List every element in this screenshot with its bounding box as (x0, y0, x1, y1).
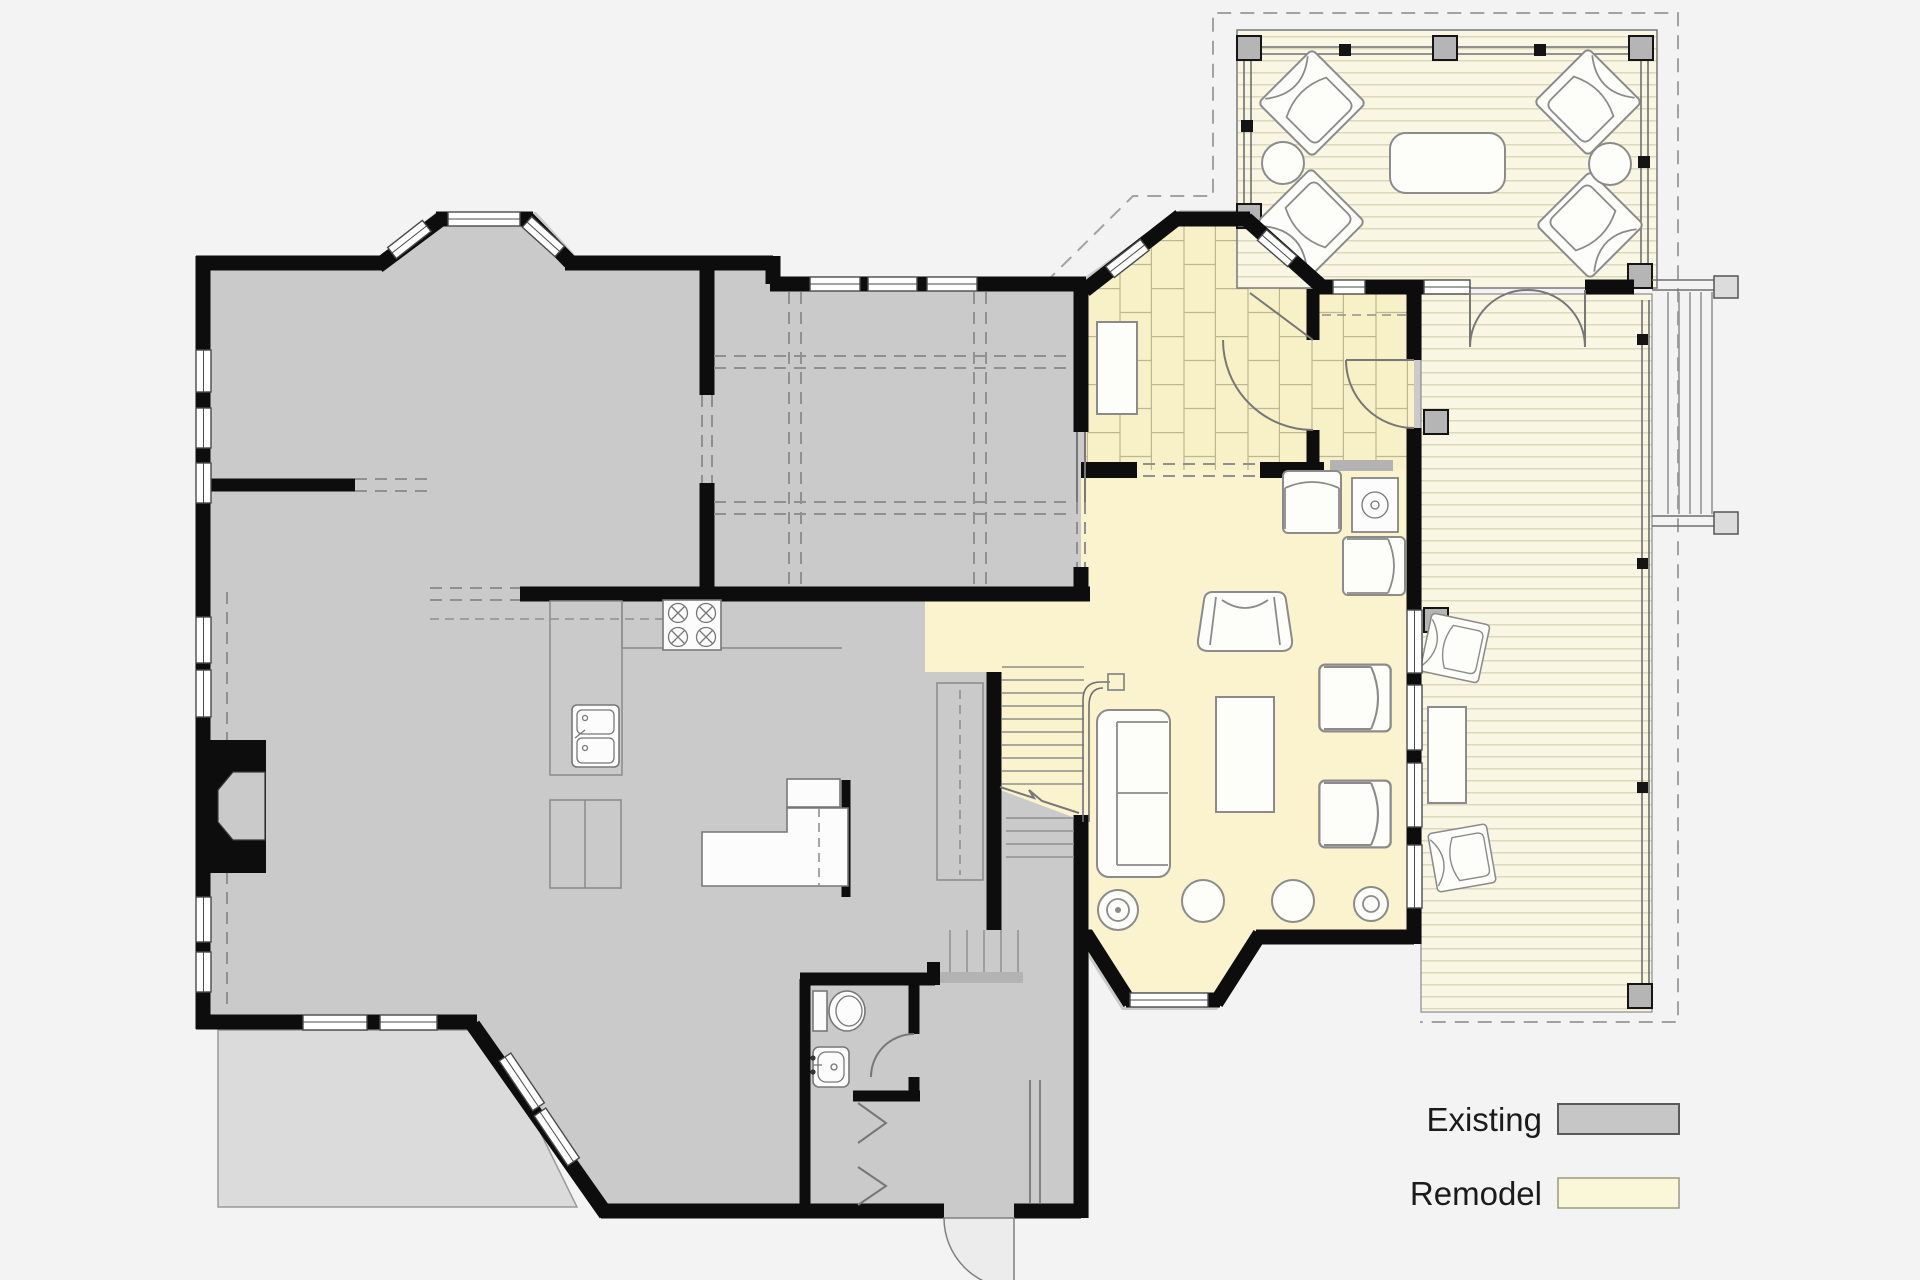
mudroom-bench (1097, 322, 1137, 414)
armchair (1283, 471, 1341, 533)
wall-stub (927, 962, 940, 985)
armchair (1343, 537, 1405, 595)
coffee-table (1216, 697, 1274, 812)
sofa (1097, 710, 1170, 877)
deck-stair-post (1714, 276, 1738, 298)
armchair (1319, 665, 1390, 732)
porch-post (1433, 36, 1457, 60)
deck (1420, 294, 1652, 1012)
bathroom-sink-icon (810, 1047, 849, 1087)
kitchen-sink-icon (572, 705, 619, 767)
legend-existing-swatch (1558, 1104, 1679, 1134)
legend-existing-label: Existing (1426, 1101, 1542, 1138)
round-side-table (1354, 887, 1388, 921)
porch-side-table (1589, 143, 1631, 185)
deck-post (1628, 984, 1652, 1008)
deck-chair (1420, 613, 1490, 683)
railing-baluster (1637, 782, 1648, 793)
hall-floor (1320, 289, 1414, 470)
railing-baluster (1637, 558, 1648, 569)
deck-post (1424, 410, 1448, 434)
railing-baluster (1339, 44, 1351, 56)
floor-plan-canvas: Existing Remodel (0, 0, 1920, 1280)
deck-chair (1428, 824, 1497, 893)
ottoman (1182, 880, 1224, 922)
fireplace-icon (196, 740, 266, 873)
armchair (1319, 781, 1390, 848)
railing-baluster (1638, 156, 1650, 168)
porch-post (1237, 36, 1261, 60)
railing-baluster (1534, 44, 1546, 56)
porch-post (1629, 36, 1653, 60)
lounge-chair (1198, 592, 1292, 651)
toilet-icon (813, 991, 865, 1031)
ottoman (1272, 880, 1314, 922)
porch-coffee-table (1390, 133, 1505, 193)
deck-stair-post (1714, 512, 1738, 534)
floor-plan-drawing: Existing Remodel (0, 0, 1920, 1280)
porch-side-table (1262, 142, 1304, 184)
railing-baluster (1637, 334, 1648, 345)
stove-burners-icon (663, 600, 721, 650)
wood-stove-icon (1352, 478, 1398, 532)
legend-remodel-label: Remodel (1410, 1175, 1542, 1212)
deck-table (1428, 707, 1466, 803)
floor-threshold (1330, 460, 1393, 471)
screened-porch (1237, 30, 1657, 288)
round-side-table (1098, 890, 1138, 930)
railing-baluster (1241, 120, 1253, 132)
stair-landing (940, 972, 1023, 983)
legend-remodel-swatch (1558, 1178, 1679, 1208)
refrigerator (787, 779, 840, 807)
